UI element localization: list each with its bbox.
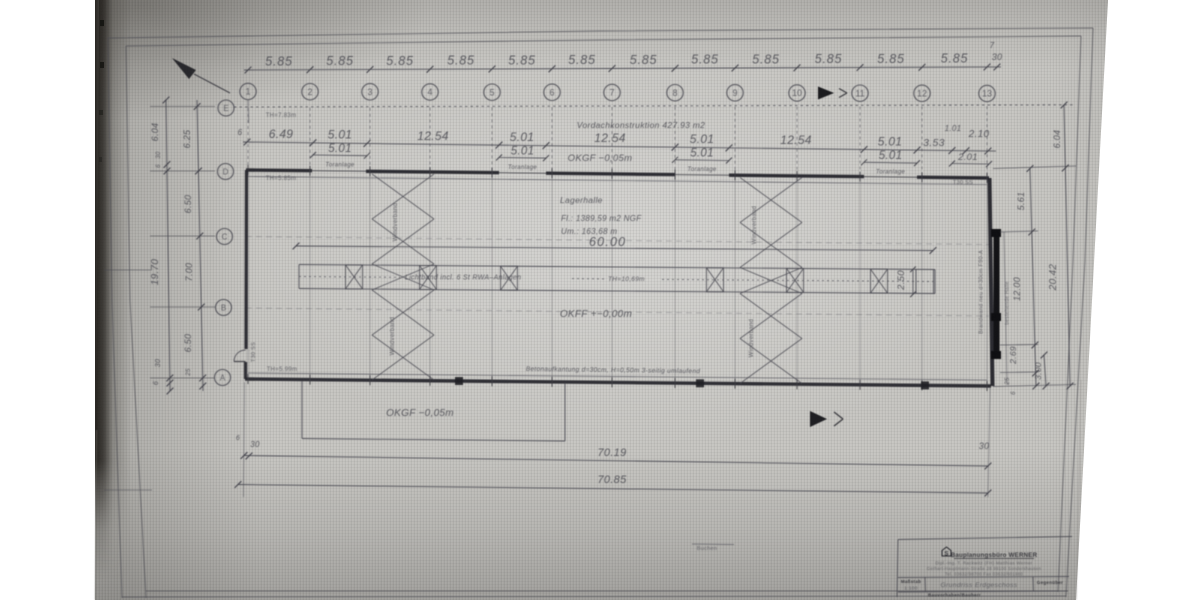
svg-text:6: 6: [236, 435, 240, 442]
svg-text:6.50: 6.50: [183, 195, 193, 214]
svg-text:2: 2: [307, 87, 312, 97]
svg-text:5.85: 5.85: [691, 53, 719, 67]
svg-text:6: 6: [1011, 391, 1017, 395]
svg-text:30: 30: [250, 440, 260, 449]
svg-text:30: 30: [979, 441, 990, 451]
svg-text:6.25: 6.25: [182, 129, 192, 148]
svg-text:7.00: 7.00: [184, 263, 194, 282]
svg-text:12.54: 12.54: [417, 129, 449, 143]
svg-text:70.19: 70.19: [597, 447, 626, 459]
svg-text:5.85: 5.85: [630, 53, 658, 67]
svg-text:30: 30: [155, 359, 162, 367]
svg-text:2.50: 2.50: [896, 270, 907, 291]
svg-text:7: 7: [609, 88, 614, 98]
svg-text:7: 7: [990, 41, 995, 50]
svg-text:Windverband: Windverband: [752, 206, 758, 245]
svg-text:6: 6: [238, 128, 243, 137]
svg-text:Buchen: Buchen: [697, 546, 717, 552]
svg-text:TH=5.85m: TH=5.85m: [266, 176, 297, 182]
svg-text:5.85: 5.85: [568, 53, 596, 67]
svg-text:Toranlage: Toranlage: [876, 170, 906, 176]
svg-text:20.42: 20.42: [1048, 264, 1059, 292]
svg-text:B: B: [221, 303, 226, 312]
svg-text:5.85: 5.85: [877, 52, 905, 66]
svg-text:D: D: [223, 167, 229, 176]
svg-text:3.53: 3.53: [923, 137, 945, 149]
svg-text:OKGF −0,05m: OKGF −0,05m: [386, 408, 454, 419]
svg-text:5.01: 5.01: [690, 148, 714, 160]
svg-text:E: E: [223, 104, 228, 113]
svg-text:12.54: 12.54: [780, 133, 812, 147]
svg-text:10: 10: [792, 88, 802, 98]
svg-text:5.85: 5.85: [265, 54, 293, 68]
svg-text:Lichtband incl. 6 St RWA–Anlag: Lichtband incl. 6 St RWA–Anlagen: [405, 275, 521, 282]
svg-text:6: 6: [153, 381, 160, 385]
svg-text:5.01: 5.01: [879, 150, 903, 162]
svg-text:5.01: 5.01: [328, 128, 353, 142]
svg-text:5.85: 5.85: [326, 54, 354, 68]
svg-text:Windverband: Windverband: [749, 319, 755, 358]
svg-text:5: 5: [489, 87, 494, 97]
svg-text:Vordachkonstruktion 427.93 m2: Vordachkonstruktion 427.93 m2: [577, 120, 705, 130]
svg-text:5.01: 5.01: [878, 134, 903, 148]
svg-text:5.85: 5.85: [815, 52, 843, 66]
svg-text:8: 8: [672, 88, 677, 98]
svg-text:Bauvorhaben/Bauherr: Bauvorhaben/Bauherr: [928, 593, 981, 598]
svg-text:Lagerhalle: Lagerhalle: [560, 195, 603, 205]
svg-text:Toranlage: Toranlage: [687, 167, 717, 173]
svg-text:6: 6: [549, 88, 554, 98]
svg-text:Gegenüber: Gegenüber: [1037, 580, 1063, 585]
svg-text:Bauplanungsbüro WERNER: Bauplanungsbüro WERNER: [951, 552, 1038, 559]
svg-text:6.04: 6.04: [150, 123, 160, 142]
svg-text:5.85: 5.85: [941, 52, 969, 66]
svg-text:6.04: 6.04: [1052, 130, 1062, 149]
svg-text:Maßstab: Maßstab: [901, 579, 921, 584]
svg-text:11: 11: [855, 88, 864, 98]
svg-text:1:100: 1:100: [904, 586, 918, 592]
svg-text:Dipl.-Ing. T. Rackwitz (FH) Ma: Dipl.-Ing. T. Rackwitz (FH) Matthias Wer…: [935, 561, 1032, 566]
svg-text:6.49: 6.49: [269, 127, 294, 141]
svg-text:25: 25: [186, 368, 192, 377]
svg-text:TH=5.99m: TH=5.99m: [267, 367, 298, 373]
svg-text:13: 13: [982, 89, 992, 99]
svg-text:OKGF −0,05m: OKGF −0,05m: [568, 153, 633, 164]
svg-text:TH=7.83m: TH=7.83m: [266, 113, 297, 119]
svg-text:6.50: 6.50: [183, 334, 193, 353]
svg-text:30: 30: [156, 151, 162, 159]
svg-text:12: 12: [917, 89, 927, 99]
svg-text:12.00: 12.00: [1012, 277, 1022, 301]
svg-text:T30 SS: T30 SS: [251, 342, 257, 362]
svg-text:Grundriss Erdgeschoss: Grundriss Erdgeschoss: [941, 582, 1018, 589]
svg-text:30: 30: [992, 52, 1003, 62]
svg-text:Fl.: 1389,59 m2 NGF: Fl.: 1389,59 m2 NGF: [561, 214, 642, 223]
svg-text:70.85: 70.85: [597, 474, 627, 486]
svg-text:T30 SS: T30 SS: [953, 180, 973, 186]
svg-text:5.61: 5.61: [1016, 192, 1026, 211]
svg-text:5.85: 5.85: [386, 54, 414, 68]
svg-text:5.01: 5.01: [328, 143, 352, 155]
svg-text:Tel. 03632/98700 Fax 03632/: Tel. 03632/98700 Fax 03632/601980: [945, 572, 1023, 577]
svg-text:3: 3: [367, 87, 372, 97]
svg-text:S: S: [944, 552, 948, 558]
svg-text:OKFF +−0,00m: OKFF +−0,00m: [560, 309, 632, 320]
svg-text:5.01: 5.01: [690, 132, 715, 146]
svg-text:C: C: [222, 232, 228, 241]
svg-text:9: 9: [732, 88, 737, 98]
svg-text:5.85: 5.85: [447, 54, 475, 68]
svg-text:2.69: 2.69: [1008, 346, 1018, 365]
svg-text:3.00: 3.00: [1033, 362, 1043, 380]
svg-text:1: 1: [245, 87, 250, 97]
svg-text:Toranlage: Toranlage: [325, 162, 355, 168]
svg-text:19.70: 19.70: [150, 259, 161, 286]
svg-text:Toranlage: Toranlage: [508, 165, 538, 171]
svg-text:25: 25: [1005, 377, 1011, 386]
svg-text:TH=10,69m: TH=10,69m: [608, 276, 645, 283]
svg-text:5.01: 5.01: [511, 145, 535, 157]
svg-text:5.85: 5.85: [752, 52, 780, 66]
svg-text:4: 4: [427, 87, 432, 97]
svg-text:60.00: 60.00: [589, 235, 626, 249]
svg-text:2.10: 2.10: [968, 129, 990, 140]
svg-text:1.01: 1.01: [945, 124, 962, 133]
svg-text:A: A: [220, 373, 226, 382]
svg-text:12.54: 12.54: [594, 131, 626, 145]
svg-text:Windverband: Windverband: [393, 203, 399, 242]
svg-text:Brandwand neu d=30cm F90-A: Brandwand neu d=30cm F90-A: [979, 250, 985, 334]
svg-text:2.01: 2.01: [957, 152, 978, 163]
svg-text:Gerhart-Hauptmann-Straße 28: Gerhart-Hauptmann-Straße 28 99100 Sonder…: [927, 566, 1042, 571]
svg-text:Windverband: Windverband: [390, 317, 396, 356]
svg-text:5.01: 5.01: [510, 130, 535, 144]
svg-text:5.85: 5.85: [508, 53, 536, 67]
svg-text:6: 6: [156, 164, 162, 168]
